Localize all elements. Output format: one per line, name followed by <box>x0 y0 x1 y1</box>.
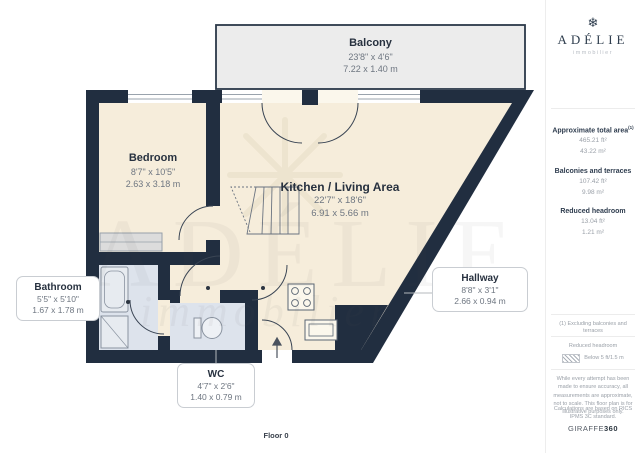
footnote-marker: (1) <box>628 125 634 130</box>
reduced-headroom-swatch-icon <box>562 354 580 363</box>
area-label: Reduced headroom <box>551 207 635 216</box>
area-m: 43.22 m² <box>551 146 635 157</box>
divider <box>551 336 635 337</box>
floor-label: Floor 0 <box>86 431 466 440</box>
wall <box>302 90 318 105</box>
brand-suffix: 360 <box>604 424 618 433</box>
giraffe360-brand: GIRAFFE360 <box>551 424 635 433</box>
wall <box>245 300 258 350</box>
info-sidebar: ❄ ADÉLIE immobilier Approximate total ar… <box>545 0 640 453</box>
agency-logo: ❄ ADÉLIE immobilier <box>551 16 635 56</box>
wall <box>158 336 170 350</box>
standard-text: Calculations are based on RICS IPMS 3C s… <box>551 405 635 422</box>
room-name: Bathroom <box>21 282 95 294</box>
agency-name: ADÉLIE <box>551 32 635 48</box>
area-m: 1.21 m² <box>551 227 635 238</box>
divider <box>551 314 635 315</box>
snowflake-watermark-icon <box>230 120 340 230</box>
room-dims-ft: 8'8" x 3'1" <box>437 285 523 296</box>
toilet-icon <box>194 318 222 339</box>
divider <box>551 369 635 370</box>
room-dims-m: 1.40 x 0.79 m <box>182 392 250 403</box>
area-ft: 107.42 ft² <box>551 176 635 187</box>
room-dims-m: 2.66 x 0.94 m <box>437 296 523 307</box>
room-dims-m: 1.67 x 1.78 m <box>21 305 95 316</box>
floorplan-drawing <box>0 0 545 453</box>
agency-subtitle: immobilier <box>551 50 635 56</box>
bathroom-callout: Bathroom 5'5" x 5'10" 1.67 x 1.78 m <box>16 276 100 321</box>
bathtub-icon <box>101 267 128 312</box>
shower-icon <box>101 316 128 348</box>
legend-title: Reduced headroom <box>551 343 635 350</box>
hallway-callout: Hallway 8'8" x 3'1" 2.66 x 0.94 m <box>432 267 528 312</box>
sink-icon <box>305 320 337 340</box>
area-m: 9.98 m² <box>551 187 635 198</box>
room-dims-ft: 4'7" x 2'6" <box>182 381 250 392</box>
floorplan-canvas: ADÉLIE immobilier Balcony 23'8" x 4'6" 7… <box>0 0 545 453</box>
divider <box>551 108 635 109</box>
area-item: Reduced headroom 13.04 ft² 1.21 m² <box>551 207 635 238</box>
area-ft: 465.21 ft² <box>551 135 635 146</box>
area-item: Balconies and terraces 107.42 ft² 9.98 m… <box>551 167 635 198</box>
area-footnote: (1) Excluding balconies and terraces <box>551 321 635 335</box>
legend-item: Below 5 ft/1.5 m <box>584 355 623 362</box>
room-name: WC <box>182 369 250 381</box>
wardrobe-icon <box>100 233 162 251</box>
area-summary: Approximate total area(1) 465.21 ft² 43.… <box>551 125 635 247</box>
room-name: Hallway <box>437 273 523 285</box>
room-dims-ft: 5'5" x 5'10" <box>21 294 95 305</box>
wall <box>158 265 170 300</box>
brand-name: GIRAFFE <box>568 424 604 433</box>
area-label: Approximate total area(1) <box>551 125 635 135</box>
wall <box>206 90 220 206</box>
wc-callout: WC 4'7" x 2'6" 1.40 x 0.79 m <box>177 363 255 408</box>
area-item: Approximate total area(1) 465.21 ft² 43.… <box>551 125 635 158</box>
area-label: Balconies and terraces <box>551 167 635 176</box>
wall <box>86 252 220 265</box>
windows <box>128 90 420 103</box>
balcony-area <box>216 25 525 89</box>
wall <box>170 290 180 303</box>
legend: Reduced headroom Below 5 ft/1.5 m <box>551 343 635 363</box>
floorplan-page: ADÉLIE immobilier Balcony 23'8" x 4'6" 7… <box>0 0 640 453</box>
stove-icon <box>288 284 314 310</box>
snowflake-icon: ❄ <box>551 16 635 29</box>
area-ft: 13.04 ft² <box>551 216 635 227</box>
